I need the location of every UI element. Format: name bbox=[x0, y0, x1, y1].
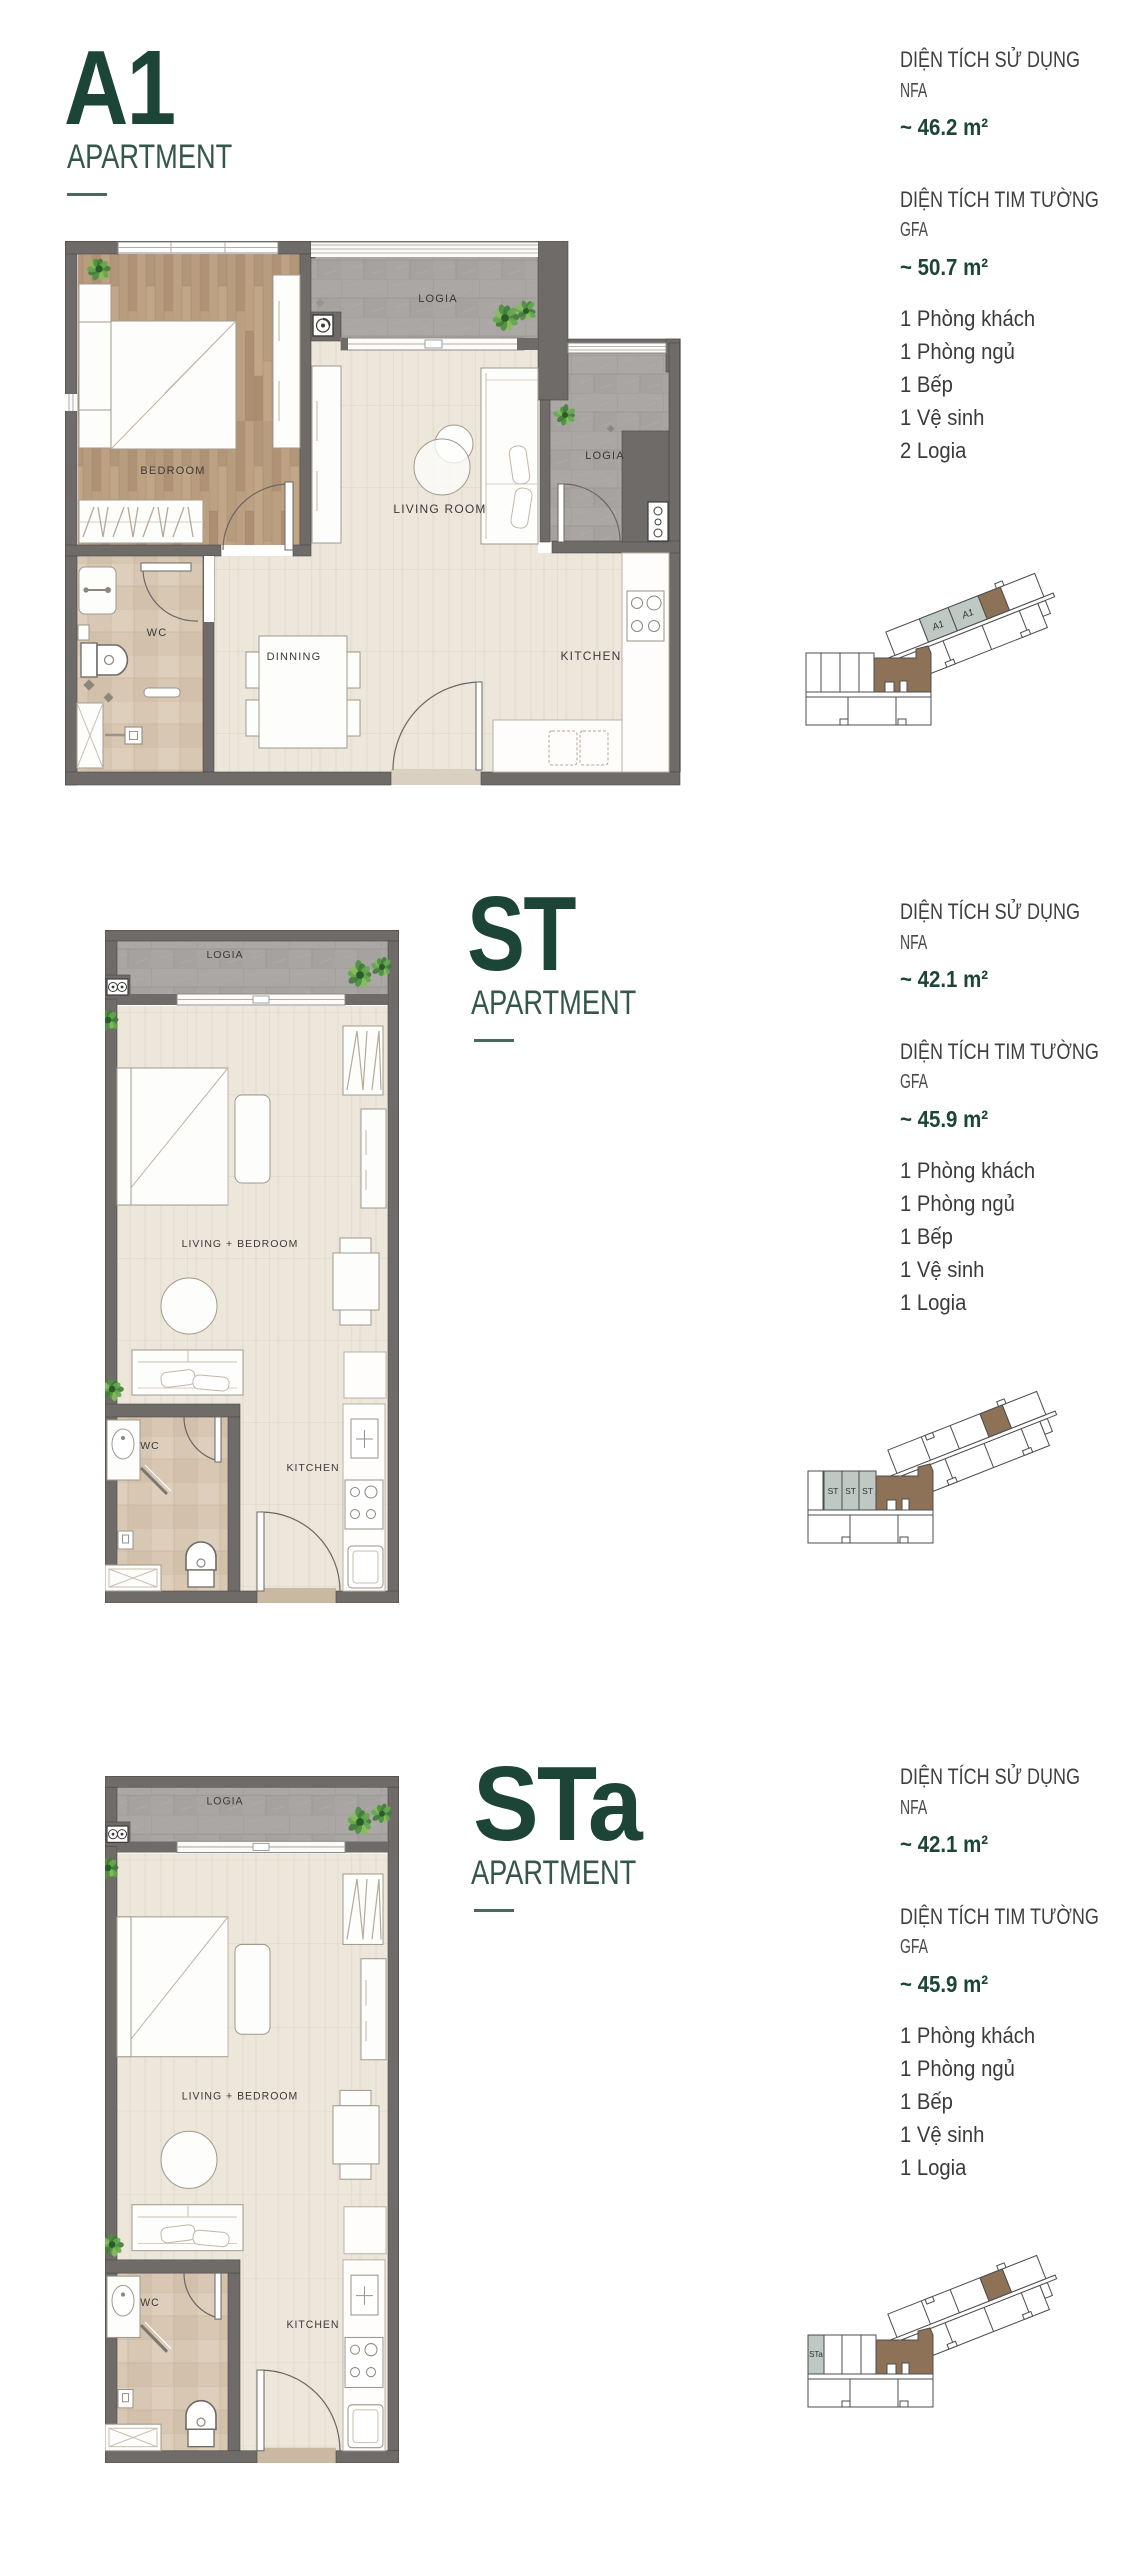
svg-text:ST: ST bbox=[862, 1486, 873, 1496]
svg-text:LOGIA: LOGIA bbox=[585, 450, 625, 462]
svg-text:LOGIA: LOGIA bbox=[206, 1795, 243, 1807]
svg-text:LIVING + BEDROOM: LIVING + BEDROOM bbox=[182, 2091, 299, 2103]
svg-text:KITCHEN: KITCHEN bbox=[560, 649, 621, 663]
svg-text:ST: ST bbox=[845, 1486, 856, 1496]
svg-text:WC: WC bbox=[147, 627, 168, 639]
svg-text:BEDROOM: BEDROOM bbox=[140, 465, 205, 477]
svg-text:KITCHEN: KITCHEN bbox=[286, 2319, 339, 2331]
svg-text:ST: ST bbox=[828, 1486, 839, 1496]
svg-text:STa: STa bbox=[809, 2350, 823, 2359]
svg-text:LIVING ROOM: LIVING ROOM bbox=[393, 502, 486, 516]
svg-text:LOGIA: LOGIA bbox=[418, 293, 458, 305]
svg-text:LIVING + BEDROOM: LIVING + BEDROOM bbox=[182, 1238, 299, 1250]
svg-text:KITCHEN: KITCHEN bbox=[286, 1462, 339, 1474]
svg-text:WC: WC bbox=[140, 1440, 160, 1452]
svg-text:WC: WC bbox=[140, 2297, 159, 2309]
svg-text:DINNING: DINNING bbox=[267, 651, 322, 663]
svg-text:LOGIA: LOGIA bbox=[206, 949, 243, 961]
